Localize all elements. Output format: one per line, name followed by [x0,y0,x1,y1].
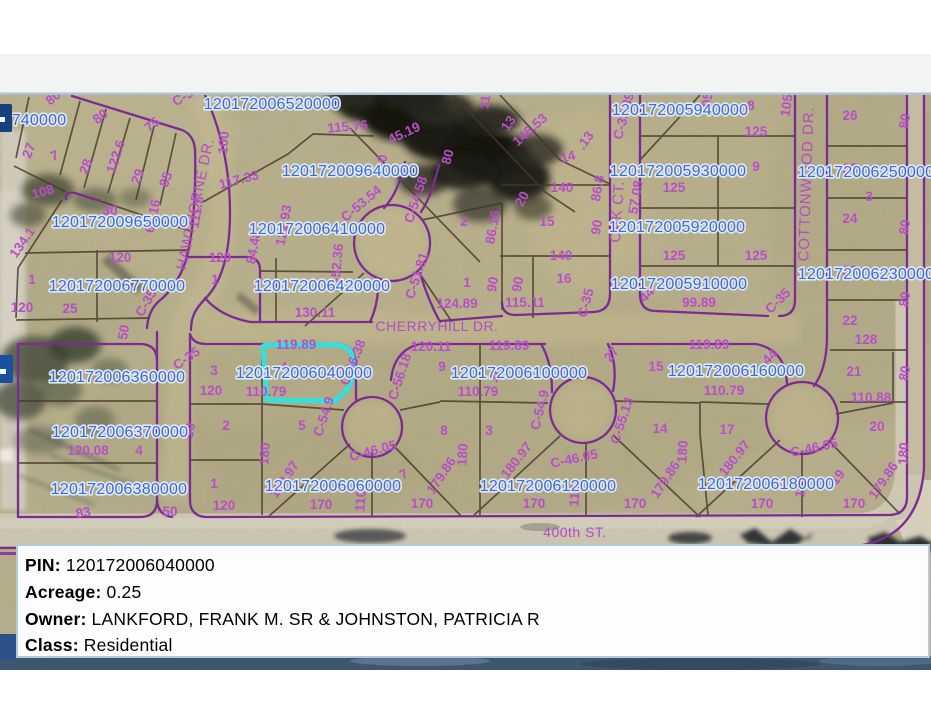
svg-text:3: 3 [210,363,218,378]
svg-text:25: 25 [62,301,78,316]
svg-text:PIN: 120172006040000: PIN: 120172006040000 [25,555,215,575]
svg-text:80: 80 [896,113,913,130]
svg-text:170: 170 [843,496,866,511]
svg-text:119.89: 119.89 [489,338,530,353]
svg-text:1: 1 [463,275,471,290]
svg-text:80: 80 [896,291,913,308]
svg-text:170: 170 [624,496,647,511]
svg-text:120: 120 [11,300,34,315]
svg-text:3: 3 [865,189,873,204]
svg-text:120172006250000: 120172006250000 [798,164,931,181]
svg-text:14: 14 [652,421,668,436]
svg-text:110.79: 110.79 [246,384,287,399]
svg-text:170: 170 [310,497,333,512]
svg-text:22: 22 [842,313,857,328]
svg-text:110.79: 110.79 [458,384,499,399]
svg-text:1: 1 [28,272,36,287]
svg-text:4: 4 [135,443,143,458]
svg-text:120.11: 120.11 [411,339,452,354]
svg-text:120172006420000: 120172006420000 [254,278,390,295]
svg-text:15: 15 [648,359,664,374]
svg-text:26: 26 [842,108,858,123]
svg-text:120172005940000: 120172005940000 [612,102,748,119]
svg-text:120: 120 [109,250,132,265]
svg-text:24: 24 [842,211,858,226]
svg-text:120172006380000: 120172006380000 [51,481,187,498]
svg-text:8: 8 [440,423,448,438]
svg-text:170: 170 [523,496,546,511]
svg-text:120172005910000: 120172005910000 [611,276,747,293]
svg-text:120172006520000: 120172006520000 [204,96,340,113]
svg-text:140: 140 [550,248,573,263]
svg-text:9: 9 [752,159,760,174]
svg-text:120172006230000: 120172006230000 [798,266,931,283]
svg-text:15: 15 [539,214,555,229]
svg-text:170: 170 [411,496,434,511]
svg-text:17: 17 [719,422,734,437]
svg-text:120: 120 [213,498,236,513]
svg-text:120172005920000: 120172005920000 [609,219,745,236]
svg-text:140: 140 [551,180,574,195]
svg-text:90: 90 [484,276,501,293]
svg-text:120172009650000: 120172009650000 [52,214,188,231]
svg-text:120172009640000: 120172009640000 [282,163,418,180]
svg-text:110.79: 110.79 [704,383,745,398]
svg-text:125: 125 [745,124,768,139]
svg-text:119.89: 119.89 [276,337,317,352]
svg-text:90: 90 [588,219,605,236]
svg-text:1: 1 [211,272,219,287]
svg-text:125: 125 [663,248,686,263]
svg-text:50: 50 [115,324,132,341]
svg-text:120172006100000: 120172006100000 [451,365,587,382]
svg-text:50: 50 [162,504,177,519]
svg-text:120172006040000: 120172006040000 [236,365,372,382]
svg-text:8: 8 [747,98,755,113]
svg-text:128: 128 [855,332,878,347]
svg-text:Class: Residential: Class: Residential [25,635,173,655]
svg-text:2: 2 [222,418,230,433]
svg-text:740000: 740000 [12,112,67,129]
svg-text:120.08: 120.08 [67,443,109,458]
svg-text:120172006120000: 120172006120000 [480,478,616,495]
svg-text:21: 21 [846,364,862,379]
svg-text:Owner: LANKFORD, FRANK M. SR &: Owner: LANKFORD, FRANK M. SR & JOHNSTON,… [25,609,540,629]
svg-text:100: 100 [215,131,232,155]
svg-text:90: 90 [509,276,526,293]
svg-text:170: 170 [751,496,774,511]
svg-text:110.88: 110.88 [851,390,892,405]
svg-text:180: 180 [895,442,912,466]
svg-text:2: 2 [460,214,468,229]
svg-text:80: 80 [896,365,913,382]
svg-text:180: 180 [674,440,691,464]
svg-text:80: 80 [896,219,913,236]
svg-text:120172006770000: 120172006770000 [49,278,185,295]
svg-text:124.89: 124.89 [436,296,477,311]
svg-text:99.89: 99.89 [682,295,716,310]
svg-text:119.89: 119.89 [689,337,730,352]
svg-text:20: 20 [869,419,884,434]
svg-text:120172006370000: 120172006370000 [52,424,188,441]
svg-text:Acreage: 0.25: Acreage: 0.25 [25,582,141,602]
svg-text:120172005930000: 120172005930000 [610,163,746,180]
svg-text:120: 120 [200,383,223,398]
svg-text:120172006160000: 120172006160000 [668,363,804,380]
svg-text:9: 9 [438,359,446,374]
svg-text:115.11: 115.11 [505,295,545,310]
svg-text:105: 105 [778,93,796,118]
svg-text:120172006360000: 120172006360000 [49,369,185,386]
svg-text:120172006180000: 120172006180000 [698,476,834,493]
svg-text:CHERRYHILL DR.: CHERRYHILL DR. [376,318,499,334]
svg-text:3: 3 [485,423,493,438]
svg-text:5: 5 [298,418,306,433]
svg-text:400th ST.: 400th ST. [543,524,607,540]
svg-text:130.11: 130.11 [295,305,336,320]
svg-text:16: 16 [556,271,572,286]
svg-text:120172006060000: 120172006060000 [265,478,401,495]
svg-text:120: 120 [209,250,232,265]
svg-text:125: 125 [745,248,768,263]
svg-text:125: 125 [663,180,686,195]
svg-text:120172006410000: 120172006410000 [249,221,385,238]
svg-text:83: 83 [75,504,93,521]
svg-text:180: 180 [256,442,273,466]
svg-text:1: 1 [210,476,218,491]
